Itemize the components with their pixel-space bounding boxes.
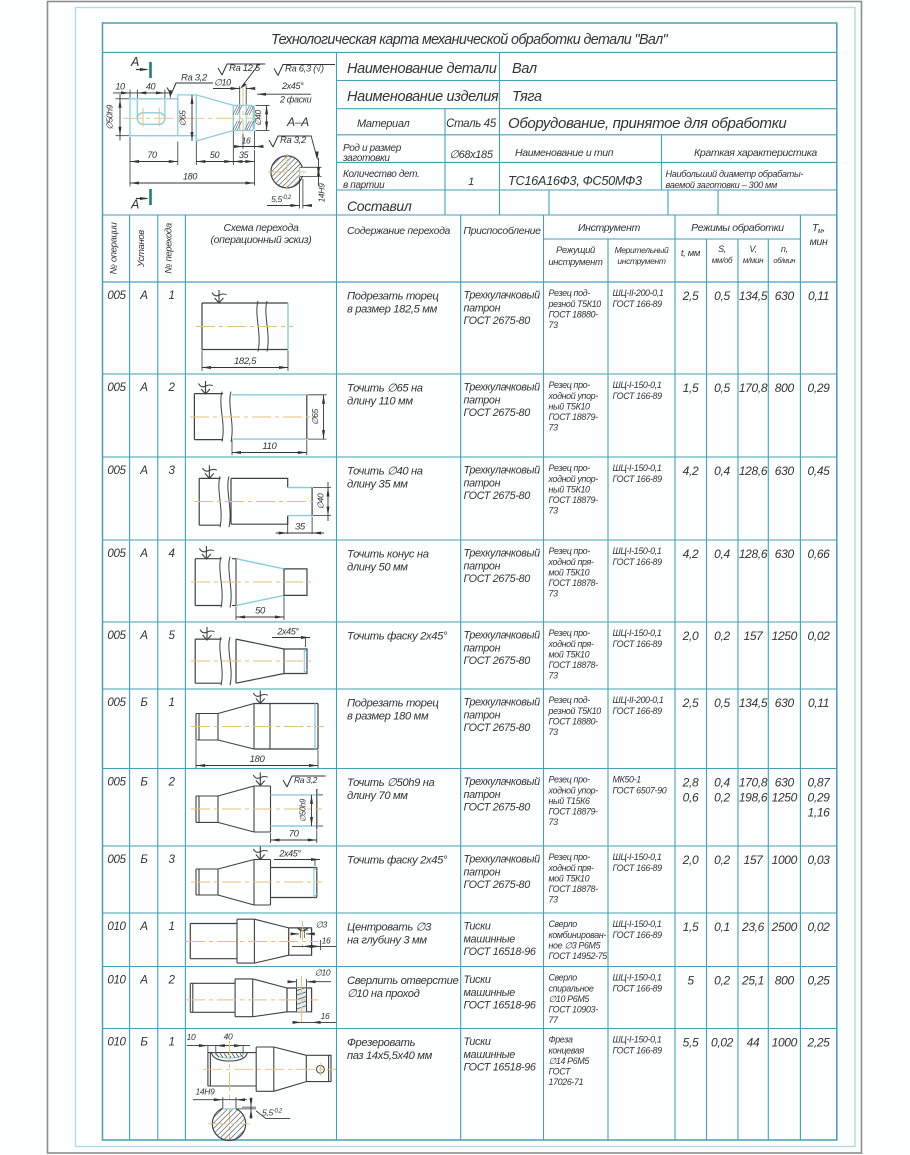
svg-text:Ra 3,2: Ra 3,2: [181, 73, 208, 84]
svg-text:2500: 2500: [771, 920, 798, 934]
svg-text:ШЦ-I-150-0,1: ШЦ-I-150-0,1: [613, 973, 662, 983]
svg-text:73: 73: [549, 506, 559, 516]
svg-text:10: 10: [115, 82, 125, 92]
svg-text:16: 16: [242, 136, 251, 146]
svg-text:на глубину 3 мм: на глубину 3 мм: [347, 935, 427, 947]
svg-text:А: А: [139, 289, 148, 302]
svg-text:010: 010: [107, 1036, 126, 1049]
svg-text:005: 005: [107, 853, 126, 866]
svg-text:3: 3: [168, 853, 175, 866]
svg-text:73: 73: [549, 817, 559, 827]
svg-text:0,03: 0,03: [808, 853, 831, 867]
svg-text:А: А: [130, 55, 139, 69]
svg-text:Б: Б: [140, 1036, 148, 1049]
svg-text:ходной упор-: ходной упор-: [548, 474, 599, 484]
svg-text:73: 73: [549, 423, 559, 433]
svg-text:∅40: ∅40: [253, 109, 263, 125]
svg-text:0,2: 0,2: [714, 791, 730, 805]
svg-text:50: 50: [210, 150, 220, 160]
svg-text:5,5-0,2: 5,5-0,2: [271, 194, 292, 204]
svg-text:2 фаски: 2 фаски: [279, 95, 312, 105]
svg-text:Точить ∅65 на: Точить ∅65 на: [347, 383, 423, 395]
svg-text:патрон: патрон: [464, 642, 501, 654]
svg-text:170,8: 170,8: [739, 381, 768, 395]
svg-text:№ операции: № операции: [109, 222, 120, 275]
svg-text:n,: n,: [781, 244, 788, 254]
svg-text:Наибольший диаметр обрабаты-: Наибольший диаметр обрабаты-: [666, 169, 804, 179]
svg-text:ГОСТ 166-89: ГОСТ 166-89: [613, 557, 663, 567]
svg-text:1000: 1000: [772, 1036, 798, 1050]
svg-text:ШЦ-I-150-0,1: ШЦ-I-150-0,1: [613, 628, 662, 638]
svg-text:0,11: 0,11: [808, 696, 829, 710]
svg-text:Резец про-: Резец про-: [549, 463, 591, 473]
svg-text:машинные: машинные: [464, 1049, 516, 1061]
svg-text:1,5: 1,5: [683, 381, 699, 395]
svg-text:м/мин: м/мин: [743, 256, 764, 265]
svg-text:010: 010: [107, 920, 126, 933]
svg-text:1,16: 1,16: [808, 806, 831, 820]
svg-text:ГОСТ 2675-80: ГОСТ 2675-80: [464, 407, 531, 419]
svg-text:ходной пря-: ходной пря-: [548, 863, 594, 873]
svg-text:резной Т5К10: резной Т5К10: [548, 299, 602, 309]
svg-text:0,6: 0,6: [683, 791, 699, 805]
svg-text:ГОСТ 18880-: ГОСТ 18880-: [549, 309, 599, 319]
svg-text:630: 630: [775, 776, 795, 790]
svg-text:Резец про-: Резец про-: [549, 628, 591, 638]
svg-text:1: 1: [168, 696, 174, 709]
svg-text:35: 35: [295, 522, 306, 533]
svg-text:0,5: 0,5: [714, 696, 730, 710]
svg-text:ГОСТ 18879-: ГОСТ 18879-: [549, 412, 599, 422]
svg-text:1: 1: [168, 289, 174, 302]
svg-text:А: А: [139, 974, 148, 987]
svg-text:2,5: 2,5: [682, 696, 699, 710]
svg-text:73: 73: [549, 727, 559, 737]
svg-text:мин: мин: [810, 236, 828, 248]
svg-text:Тиски: Тиски: [464, 974, 491, 986]
svg-text:t, мм: t, мм: [681, 248, 701, 259]
svg-text:180: 180: [183, 171, 197, 181]
svg-text:Краткая характеристика: Краткая характеристика: [694, 147, 817, 159]
svg-text:ное ∅3 Р6М5: ное ∅3 Р6М5: [549, 940, 601, 950]
svg-text:1250: 1250: [772, 629, 798, 643]
svg-text:ходной пря-: ходной пря-: [548, 557, 594, 567]
svg-text:Точить ∅50h9 на: Точить ∅50h9 на: [347, 777, 435, 789]
svg-text:∅10: ∅10: [315, 968, 331, 978]
svg-text:ГОСТ 166-89: ГОСТ 166-89: [613, 706, 663, 716]
svg-text:об/мин: об/мин: [773, 256, 795, 265]
svg-text:005: 005: [107, 776, 126, 789]
svg-text:70: 70: [289, 829, 300, 840]
svg-text:40: 40: [146, 82, 156, 92]
svg-text:134,5: 134,5: [739, 289, 768, 303]
svg-text:Режимы обработки: Режимы обработки: [691, 222, 784, 234]
svg-text:Трехкулачковый: Трехкулачковый: [464, 854, 541, 866]
svg-text:ГОСТ 10903-: ГОСТ 10903-: [549, 1005, 599, 1015]
svg-text:2: 2: [167, 974, 175, 987]
svg-text:0,45: 0,45: [808, 464, 831, 478]
svg-text:ШЦ-I-150-0,1: ШЦ-I-150-0,1: [613, 1035, 662, 1045]
svg-text:∅65: ∅65: [178, 110, 188, 126]
svg-text:010: 010: [107, 974, 126, 987]
svg-text:ГОСТ 166-89: ГОСТ 166-89: [613, 863, 663, 873]
svg-text:Составил: Составил: [347, 198, 412, 214]
svg-text:ГОСТ 18879-: ГОСТ 18879-: [549, 495, 599, 505]
svg-text:в размер 180 мм: в размер 180 мм: [347, 711, 429, 723]
svg-text:Тиски: Тиски: [464, 1036, 491, 1048]
svg-text:1: 1: [468, 176, 474, 188]
svg-text:10: 10: [187, 1032, 196, 1042]
svg-text:50: 50: [255, 606, 266, 617]
svg-text:0,5: 0,5: [714, 381, 730, 395]
svg-text:134,5: 134,5: [739, 696, 768, 710]
svg-text:2,5: 2,5: [682, 289, 699, 303]
svg-text:Подрезать торец: Подрезать торец: [347, 291, 439, 303]
svg-text:мой Т5К10: мой Т5К10: [549, 649, 590, 659]
svg-text:Точить фаску 2х45°: Точить фаску 2х45°: [347, 855, 448, 867]
svg-text:патрон: патрон: [464, 866, 501, 878]
svg-text:Трехкулачковый: Трехкулачковый: [464, 697, 541, 709]
svg-text:∅65: ∅65: [310, 408, 320, 424]
svg-text:198,6: 198,6: [739, 791, 768, 805]
svg-text:157: 157: [744, 629, 765, 643]
svg-text:ГОСТ 16518-96: ГОСТ 16518-96: [464, 1000, 536, 1012]
svg-text:в партии: в партии: [343, 180, 385, 191]
svg-text:МК50-1: МК50-1: [613, 775, 642, 785]
svg-text:∅10: ∅10: [214, 78, 231, 88]
svg-text:инструмент: инструмент: [548, 257, 603, 268]
svg-text:ШЦ-I-150-0,1: ШЦ-I-150-0,1: [613, 463, 662, 473]
svg-text:ГОСТ 14952-75: ГОСТ 14952-75: [549, 951, 608, 961]
svg-text:ГОСТ 16518-96: ГОСТ 16518-96: [464, 1062, 536, 1074]
svg-text:17026-71: 17026-71: [549, 1077, 584, 1087]
svg-text:Резец про-: Резец про-: [549, 852, 591, 862]
svg-text:∅50h9: ∅50h9: [299, 798, 308, 822]
svg-text:73: 73: [549, 589, 559, 599]
svg-text:ГОСТ 6507-90: ГОСТ 6507-90: [613, 785, 667, 795]
svg-text:1,5: 1,5: [683, 920, 699, 934]
svg-text:0,66: 0,66: [808, 547, 831, 561]
svg-text:патрон: патрон: [464, 302, 501, 314]
svg-text:16: 16: [321, 1011, 330, 1021]
svg-text:5,5: 5,5: [683, 1036, 699, 1050]
svg-text:Наименование изделия: Наименование изделия: [347, 89, 499, 105]
svg-text:ШЦ-II-200-0,1: ШЦ-II-200-0,1: [613, 695, 664, 705]
svg-text:ШЦ-I-150-0,1: ШЦ-I-150-0,1: [613, 852, 662, 862]
svg-text:Б: Б: [140, 696, 148, 709]
svg-text:ГОСТ 18878-: ГОСТ 18878-: [549, 660, 599, 670]
svg-text:длину 110 мм: длину 110 мм: [347, 396, 413, 408]
svg-text:Материал: Материал: [357, 118, 409, 130]
svg-text:4,2: 4,2: [683, 464, 699, 478]
svg-text:005: 005: [107, 629, 126, 642]
svg-text:ГОСТ 16518-96: ГОСТ 16518-96: [464, 946, 536, 958]
svg-text:Точить конус на: Точить конус на: [347, 549, 429, 561]
svg-text:ТС16А16Ф3, ФС50МФ3: ТС16А16Ф3, ФС50МФ3: [508, 173, 642, 188]
svg-text:23,6: 23,6: [741, 920, 765, 934]
svg-text:в размер 182,5 мм: в размер 182,5 мм: [347, 304, 438, 316]
svg-text:Ra 6,3 (√): Ra 6,3 (√): [285, 64, 324, 75]
svg-text:ный Т5К10: ный Т5К10: [549, 484, 591, 494]
svg-text:Трехкулачковый: Трехкулачковый: [464, 548, 541, 560]
svg-text:ГОСТ 2675-80: ГОСТ 2675-80: [464, 490, 531, 502]
svg-text:14Н9: 14Н9: [317, 183, 327, 203]
svg-text:ГОСТ 166-89: ГОСТ 166-89: [613, 474, 663, 484]
svg-text:40: 40: [224, 1032, 233, 1042]
svg-text:ГОСТ 18878-: ГОСТ 18878-: [549, 578, 599, 588]
svg-text:спиральное: спиральное: [549, 983, 594, 993]
svg-text:170,8: 170,8: [739, 776, 768, 790]
svg-text:Ra 3,2: Ra 3,2: [280, 135, 307, 146]
svg-text:2х45°: 2х45°: [276, 627, 299, 637]
svg-text:Технологическая карта механиче: Технологическая карта механической обраб…: [271, 32, 669, 48]
svg-text:110: 110: [262, 441, 277, 452]
svg-text:паз 14х5,5х40 мм: паз 14х5,5х40 мм: [347, 1050, 433, 1062]
svg-text:ваемой заготовки – 300 мм: ваемой заготовки – 300 мм: [666, 180, 778, 190]
svg-text:ГОСТ 166-89: ГОСТ 166-89: [613, 639, 663, 649]
svg-text:машинные: машинные: [464, 933, 516, 945]
svg-text:Б: Б: [140, 776, 148, 789]
svg-text:0,29: 0,29: [808, 381, 831, 395]
svg-text:630: 630: [775, 696, 795, 710]
svg-text:Инструмент: Инструмент: [578, 222, 641, 234]
svg-text:2х45°: 2х45°: [281, 81, 304, 91]
svg-text:V,: V,: [749, 244, 756, 254]
svg-text:Трехкулачковый: Трехкулачковый: [464, 290, 541, 302]
svg-text:Мерительный: Мерительный: [615, 245, 669, 255]
svg-text:35: 35: [239, 150, 250, 160]
svg-text:5,5-0,2: 5,5-0,2: [262, 1108, 283, 1118]
svg-text:2,0: 2,0: [682, 629, 699, 643]
svg-text:005: 005: [107, 289, 126, 302]
svg-text:ГОСТ 166-89: ГОСТ 166-89: [613, 299, 663, 309]
svg-text:патрон: патрон: [464, 789, 501, 801]
svg-text:2,8: 2,8: [682, 776, 699, 790]
svg-text:0,02: 0,02: [808, 629, 831, 643]
svg-text:Приспособление: Приспособление: [463, 225, 541, 237]
svg-text:ГОСТ 166-89: ГОСТ 166-89: [613, 930, 663, 940]
svg-text:№ перехода: № перехода: [164, 223, 175, 274]
svg-text:Трехкулачковый: Трехкулачковый: [464, 776, 541, 788]
svg-text:(операционный эскиз): (операционный эскиз): [211, 234, 312, 246]
svg-text:∅40: ∅40: [316, 493, 326, 509]
svg-text:16: 16: [322, 936, 331, 946]
svg-text:Резец про-: Резец про-: [549, 775, 591, 785]
svg-text:25,1: 25,1: [741, 974, 764, 988]
svg-text:длину 70 мм: длину 70 мм: [347, 790, 408, 802]
svg-text:ГОСТ 166-89: ГОСТ 166-89: [613, 1045, 663, 1055]
svg-text:мой Т5К10: мой Т5К10: [549, 873, 590, 883]
svg-text:182,5: 182,5: [234, 356, 257, 367]
svg-text:ГОСТ 2675-80: ГОСТ 2675-80: [464, 573, 531, 585]
svg-text:Количество дет.: Количество дет.: [343, 169, 419, 180]
svg-text:инструмент: инструмент: [617, 256, 665, 266]
svg-text:ШЦ-I-150-0,1: ШЦ-I-150-0,1: [613, 919, 662, 929]
svg-text:4,2: 4,2: [683, 547, 699, 561]
svg-text:73: 73: [549, 895, 559, 905]
svg-text:73: 73: [549, 320, 559, 330]
svg-text:Оборудование, принятое для обр: Оборудование, принятое для обработки: [508, 115, 787, 132]
svg-text:ГОСТ 2675-80: ГОСТ 2675-80: [464, 722, 531, 734]
svg-text:0,4: 0,4: [714, 547, 730, 561]
svg-text:Центровать ∅3: Центровать ∅3: [347, 922, 432, 934]
svg-text:1: 1: [168, 920, 174, 933]
svg-text:2: 2: [167, 381, 175, 394]
svg-text:патрон: патрон: [464, 477, 501, 489]
svg-text:5: 5: [687, 974, 694, 988]
svg-text:Фрезеровать: Фрезеровать: [347, 1037, 416, 1049]
svg-text:ходной упор-: ходной упор-: [548, 391, 599, 401]
svg-text:ГОСТ 166-89: ГОСТ 166-89: [613, 391, 663, 401]
svg-text:005: 005: [107, 547, 126, 560]
svg-text:0,02: 0,02: [808, 920, 831, 934]
svg-text:Резец под-: Резец под-: [549, 695, 591, 705]
svg-text:заготовки: заготовки: [342, 153, 390, 164]
svg-text:Фреза: Фреза: [549, 1035, 573, 1045]
svg-text:0,87: 0,87: [808, 776, 832, 790]
svg-text:Сверлить отверстие: Сверлить отверстие: [347, 975, 458, 987]
svg-text:44: 44: [747, 1036, 760, 1050]
svg-text:Трехкулачковый: Трехкулачковый: [464, 382, 541, 394]
svg-text:4: 4: [168, 547, 175, 560]
svg-text:0,02: 0,02: [711, 1036, 734, 1050]
svg-text:ГОСТ 2675-80: ГОСТ 2675-80: [464, 315, 531, 327]
svg-text:ГОСТ 18878-: ГОСТ 18878-: [549, 884, 599, 894]
svg-text:мой Т5К10: мой Т5К10: [549, 567, 590, 577]
svg-text:ГОСТ 2675-80: ГОСТ 2675-80: [464, 655, 531, 667]
svg-text:∅50h9: ∅50h9: [105, 104, 115, 129]
svg-text:длину 50 мм: длину 50 мм: [347, 562, 408, 574]
svg-text:128,6: 128,6: [739, 547, 768, 561]
svg-text:14Н9: 14Н9: [196, 1087, 216, 1097]
svg-text:180: 180: [250, 754, 266, 765]
svg-text:005: 005: [107, 381, 126, 394]
svg-text:ГОСТ 2675-80: ГОСТ 2675-80: [464, 802, 531, 814]
svg-text:Точить фаску 2х45°: Точить фаску 2х45°: [347, 631, 448, 643]
svg-text:2: 2: [167, 776, 175, 789]
svg-text:∅3: ∅3: [316, 920, 328, 930]
svg-text:длину 35 мм: длину 35 мм: [347, 479, 408, 491]
svg-text:Установ: Установ: [136, 230, 147, 268]
svg-text:0,2: 0,2: [714, 629, 730, 643]
svg-text:1250: 1250: [772, 791, 798, 805]
svg-text:А: А: [139, 381, 148, 394]
svg-text:0,2: 0,2: [714, 853, 730, 867]
svg-text:Резец про-: Резец про-: [549, 546, 591, 556]
svg-text:0,5: 0,5: [714, 289, 730, 303]
svg-text:800: 800: [775, 974, 795, 988]
svg-text:Тм,: Тм,: [812, 222, 825, 235]
svg-text:ходной пря-: ходной пря-: [548, 639, 594, 649]
svg-text:0,29: 0,29: [808, 791, 831, 805]
svg-text:∅10 Р6М5: ∅10 Р6М5: [549, 994, 590, 1004]
svg-text:1000: 1000: [772, 853, 798, 867]
svg-text:Сверло: Сверло: [549, 973, 578, 983]
svg-text:А: А: [139, 547, 148, 560]
svg-text:Схема перехода: Схема перехода: [224, 222, 299, 234]
svg-text:∅10 на проход: ∅10 на проход: [347, 988, 420, 1000]
svg-text:ШЦ-I-150-0,1: ШЦ-I-150-0,1: [613, 380, 662, 390]
svg-text:Трехкулачковый: Трехкулачковый: [464, 465, 541, 477]
svg-text:S,: S,: [718, 244, 726, 254]
svg-text:630: 630: [775, 547, 795, 561]
svg-text:157: 157: [744, 853, 765, 867]
svg-text:Ra 3,2: Ra 3,2: [294, 775, 318, 785]
svg-text:Б: Б: [140, 853, 148, 866]
svg-text:ГОСТ 2675-80: ГОСТ 2675-80: [464, 879, 531, 891]
svg-text:ШЦ-I-150-0,1: ШЦ-I-150-0,1: [613, 546, 662, 556]
svg-text:Наименование детали: Наименование детали: [347, 61, 497, 77]
svg-text:128,6: 128,6: [739, 464, 768, 478]
svg-text:Режущий: Режущий: [556, 245, 596, 256]
svg-text:Вал: Вал: [512, 61, 537, 77]
svg-text:2,25: 2,25: [807, 1036, 831, 1050]
svg-text:ный Т5К10: ный Т5К10: [549, 401, 591, 411]
svg-text:73: 73: [549, 671, 559, 681]
svg-text:1: 1: [168, 1036, 174, 1049]
svg-text:ГОСТ 166-89: ГОСТ 166-89: [613, 983, 663, 993]
svg-text:ный Т15К6: ный Т15К6: [549, 796, 591, 806]
svg-text:005: 005: [107, 464, 126, 477]
svg-text:0,11: 0,11: [808, 289, 829, 303]
svg-text:0,4: 0,4: [714, 776, 730, 790]
svg-text:патрон: патрон: [464, 394, 501, 406]
svg-text:резной Т5К10: резной Т5К10: [548, 706, 602, 716]
svg-text:А: А: [139, 629, 148, 642]
svg-text:2,0: 2,0: [682, 853, 699, 867]
svg-text:А: А: [139, 464, 148, 477]
svg-text:ШЦ-II-200-0,1: ШЦ-II-200-0,1: [613, 288, 664, 298]
svg-text:2х45°: 2х45°: [278, 849, 301, 859]
svg-text:Сталь 45: Сталь 45: [446, 118, 497, 130]
svg-text:концевая: концевая: [549, 1045, 585, 1055]
svg-text:комбинирован-: комбинирован-: [549, 930, 607, 940]
svg-text:Наименование и тип: Наименование и тип: [515, 147, 614, 159]
svg-text:Резец про-: Резец про-: [549, 380, 591, 390]
svg-text:3: 3: [168, 464, 175, 477]
svg-text:ГОСТ: ГОСТ: [549, 1067, 571, 1077]
svg-text:005: 005: [107, 696, 126, 709]
svg-text:630: 630: [775, 464, 795, 478]
svg-text:Тиски: Тиски: [464, 921, 491, 933]
svg-text:Резец под-: Резец под-: [549, 288, 591, 298]
svg-text:патрон: патрон: [464, 709, 501, 721]
svg-text:А–А: А–А: [286, 115, 309, 129]
svg-text:0,2: 0,2: [714, 974, 730, 988]
svg-text:0,1: 0,1: [714, 920, 730, 934]
svg-text:70: 70: [147, 150, 157, 160]
svg-text:0,25: 0,25: [808, 974, 831, 988]
svg-text:Подрезать торец: Подрезать торец: [347, 698, 439, 710]
svg-text:А: А: [130, 198, 139, 212]
svg-text:Тяга: Тяга: [512, 89, 542, 105]
svg-text:∅14 Р6М5: ∅14 Р6М5: [549, 1056, 590, 1066]
svg-text:800: 800: [775, 381, 795, 395]
svg-text:ГОСТ 18879-: ГОСТ 18879-: [549, 807, 599, 817]
svg-text:Сверло: Сверло: [549, 919, 578, 929]
svg-text:А: А: [139, 920, 148, 933]
svg-text:Трехкулачковый: Трехкулачковый: [464, 630, 541, 642]
svg-text:ходной упор-: ходной упор-: [548, 785, 599, 795]
svg-text:0,4: 0,4: [714, 464, 730, 478]
svg-text:Точить ∅40 на: Точить ∅40 на: [347, 466, 423, 478]
svg-text:ГОСТ 18880-: ГОСТ 18880-: [549, 716, 599, 726]
svg-text:машинные: машинные: [464, 987, 516, 999]
svg-text:∅68х185: ∅68х185: [449, 149, 493, 161]
svg-text:патрон: патрон: [464, 560, 501, 572]
svg-text:630: 630: [775, 289, 795, 303]
svg-text:77: 77: [549, 1015, 560, 1025]
